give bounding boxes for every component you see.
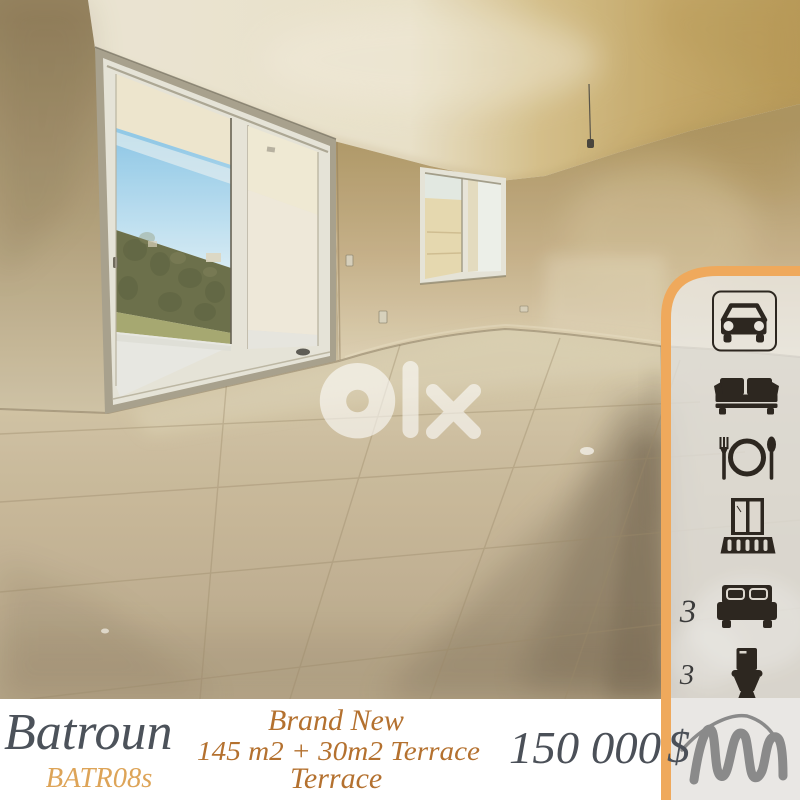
svg-text:BATR08s: BATR08s	[46, 763, 153, 794]
svg-text:Terrace: Terrace	[290, 762, 382, 795]
svg-text:3: 3	[679, 594, 697, 630]
svg-text:3: 3	[679, 659, 695, 691]
svg-text:$: $	[667, 721, 690, 772]
svg-text:150 000: 150 000	[509, 723, 661, 773]
svg-text:Brand New: Brand New	[268, 704, 404, 737]
svg-text:Batroun: Batroun	[4, 704, 173, 761]
